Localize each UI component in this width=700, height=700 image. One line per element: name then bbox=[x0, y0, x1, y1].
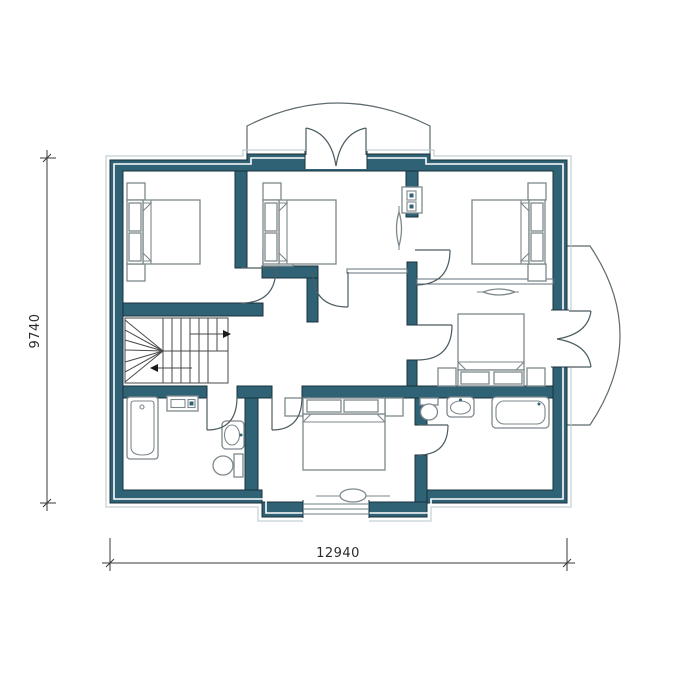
bed-bottom-middle bbox=[285, 398, 403, 470]
floor-plan-page: 12940 9740 bbox=[0, 0, 700, 700]
nightstand bbox=[528, 183, 546, 200]
bed-top-right bbox=[472, 183, 546, 281]
dimension-bottom: 12940 bbox=[102, 538, 575, 571]
bed-right-middle bbox=[438, 314, 545, 386]
bathroom-bottom-left bbox=[127, 396, 244, 477]
thin-partitions bbox=[347, 269, 553, 284]
stair-arrow-up bbox=[190, 330, 231, 338]
nightstand bbox=[438, 368, 456, 386]
nightstand bbox=[127, 264, 145, 281]
bathtub bbox=[492, 397, 549, 428]
dimension-left: 9740 bbox=[28, 150, 56, 511]
nightstand bbox=[127, 183, 145, 200]
balcony-right bbox=[565, 246, 620, 425]
toilet bbox=[213, 454, 243, 477]
window-bottom bbox=[303, 500, 369, 523]
washbasin bbox=[447, 397, 474, 417]
nightstand bbox=[527, 368, 545, 386]
door-bedroom-right-middle bbox=[417, 325, 452, 360]
nightstand bbox=[263, 183, 281, 200]
radiator-horizontal bbox=[477, 289, 519, 295]
door-bathroom-right bbox=[418, 425, 448, 455]
floor-plan-drawing: 12940 9740 bbox=[0, 0, 700, 700]
ventilation-block bbox=[167, 396, 198, 411]
nightstand bbox=[385, 398, 403, 416]
bed-top-left bbox=[127, 183, 200, 281]
nightstand bbox=[528, 264, 546, 281]
bathroom-bottom-right bbox=[420, 397, 549, 428]
ventilation-block bbox=[402, 187, 422, 213]
toilet bbox=[420, 398, 438, 420]
nightstand bbox=[285, 398, 303, 416]
dimension-width-label: 12940 bbox=[316, 546, 360, 561]
bathtub bbox=[127, 397, 158, 459]
bed-top-middle bbox=[263, 183, 336, 266]
dimension-height-label: 9740 bbox=[28, 313, 43, 348]
radiator-vertical bbox=[397, 206, 402, 250]
stair-arrow-down bbox=[150, 364, 192, 372]
winder-staircase bbox=[125, 318, 231, 383]
